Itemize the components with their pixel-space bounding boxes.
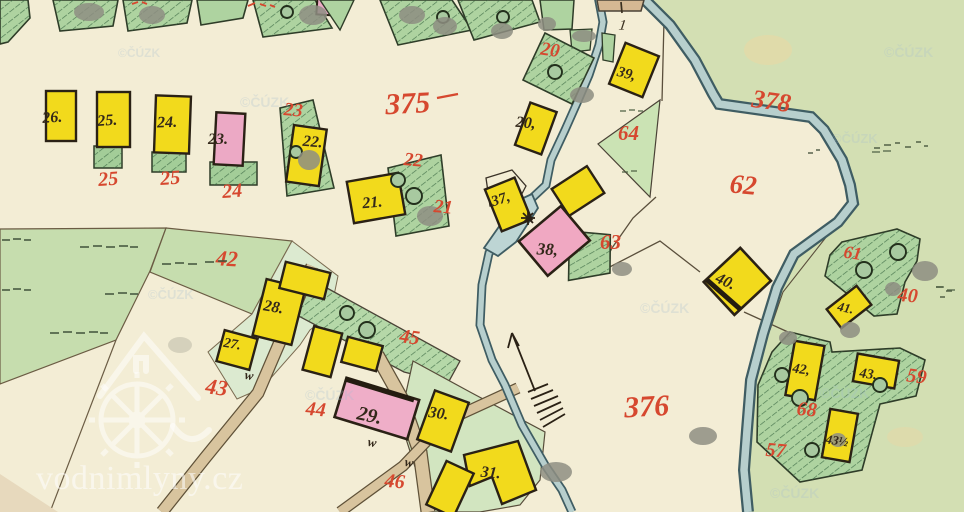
svg-text:38,: 38,: [535, 239, 558, 259]
svg-text:22.: 22.: [301, 133, 323, 152]
svg-text:46: 46: [383, 470, 406, 494]
svg-text:42: 42: [214, 245, 238, 271]
svg-text:©ČÚZK: ©ČÚZK: [240, 93, 289, 110]
svg-text:24.: 24.: [156, 114, 178, 132]
svg-text:59: 59: [905, 364, 928, 389]
svg-text:25: 25: [96, 168, 118, 191]
svg-text:63: 63: [600, 230, 621, 254]
svg-text:27.: 27.: [221, 336, 242, 354]
svg-text:376: 376: [622, 389, 670, 424]
svg-text:22: 22: [402, 149, 424, 172]
svg-text:©ČÚZK: ©ČÚZK: [832, 131, 878, 146]
svg-text:31.: 31.: [479, 464, 501, 483]
svg-text:23.: 23.: [207, 131, 228, 148]
svg-text:20: 20: [538, 38, 561, 62]
svg-text:©ČÚZK: ©ČÚZK: [118, 45, 161, 60]
svg-text:68: 68: [796, 398, 818, 422]
svg-text:375: 375: [383, 86, 431, 121]
svg-text:40: 40: [896, 284, 919, 308]
svg-text:21.: 21.: [361, 193, 383, 212]
svg-text:43.: 43.: [857, 366, 877, 383]
svg-text:©ČÚZK: ©ČÚZK: [820, 384, 869, 401]
svg-text:21: 21: [432, 196, 454, 219]
svg-text:45: 45: [397, 325, 421, 350]
svg-text:30.: 30.: [426, 404, 449, 424]
svg-text:64: 64: [618, 121, 639, 145]
svg-text:61: 61: [842, 242, 863, 264]
svg-text:20,: 20,: [514, 114, 536, 133]
svg-text:43: 43: [203, 373, 229, 401]
svg-text:24: 24: [220, 180, 242, 203]
svg-text:57: 57: [765, 439, 788, 463]
svg-text:©ČÚZK: ©ČÚZK: [640, 299, 689, 316]
svg-text:26.: 26.: [41, 109, 63, 127]
svg-text:©ČÚZK: ©ČÚZK: [305, 386, 354, 403]
svg-text:378: 378: [749, 84, 793, 118]
svg-text:©ČÚZK: ©ČÚZK: [884, 43, 933, 60]
svg-text:42,: 42,: [790, 361, 810, 378]
svg-text:62: 62: [729, 168, 759, 200]
svg-text:28.: 28.: [261, 297, 285, 317]
svg-text:25.: 25.: [96, 112, 118, 130]
svg-text:©ČÚZK: ©ČÚZK: [770, 484, 819, 501]
svg-text:vodnimlyny.cz: vodnimlyny.cz: [36, 460, 243, 497]
svg-text:©ČÚZK: ©ČÚZK: [148, 287, 194, 302]
svg-text:25: 25: [158, 167, 180, 190]
